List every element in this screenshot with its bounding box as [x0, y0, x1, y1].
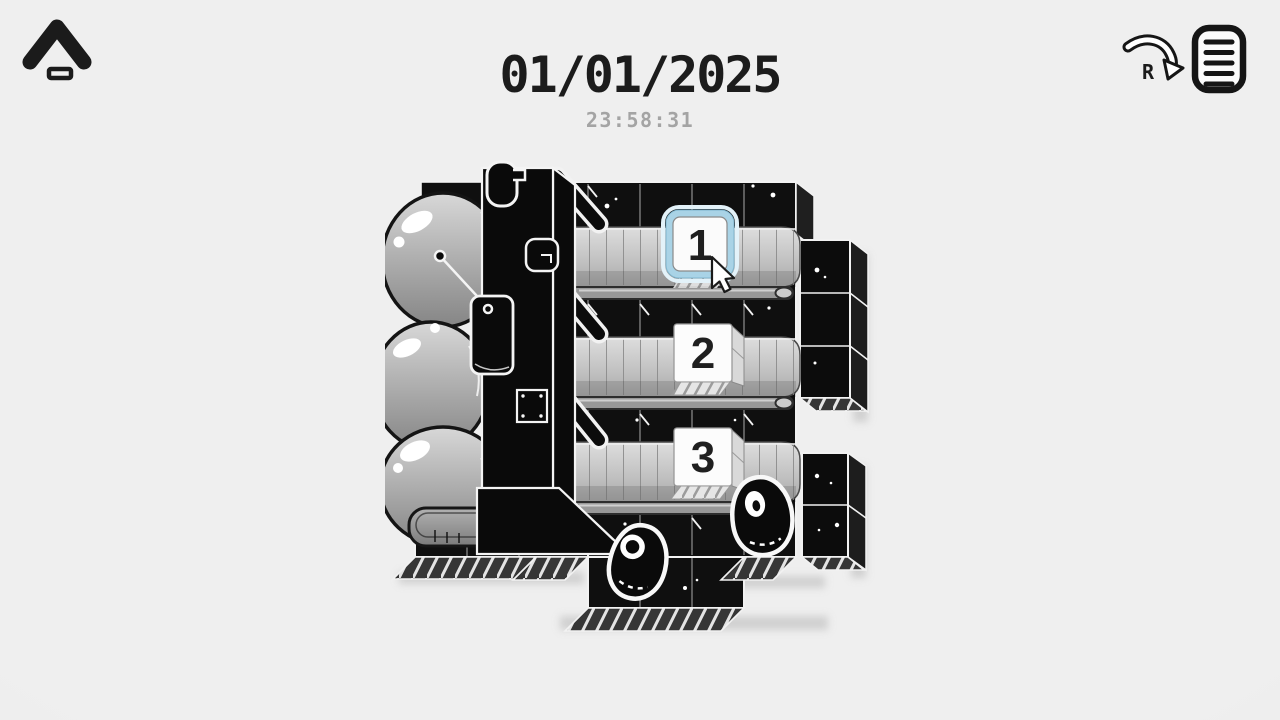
right-cube-group-upper	[800, 240, 868, 412]
machine-chimney	[487, 162, 517, 206]
arrow-head	[1164, 60, 1183, 79]
date-label: 01/01/2025	[0, 50, 1280, 100]
journal-button[interactable]	[1190, 24, 1250, 96]
shortcut-key-label: R	[1142, 60, 1155, 84]
wire-anchor	[435, 251, 445, 261]
conveyor-3-number: 3	[691, 433, 715, 482]
journal-list-icon	[1195, 28, 1243, 90]
screw-plate	[517, 390, 547, 422]
time-label: 23:58:31	[0, 110, 1280, 130]
curved-arrow-icon: R	[1118, 28, 1188, 92]
date-time-header: 01/01/2025 23:58:31	[0, 50, 1280, 130]
conveyor-2-number: 2	[691, 329, 715, 378]
conveyor-1-number: 1	[688, 221, 712, 270]
puzzle-scene: 2 3 1	[385, 158, 915, 648]
game-screen: 01/01/2025 23:58:31 R	[0, 0, 1280, 720]
roller-end-cap	[776, 398, 793, 409]
journal-group: R	[1118, 24, 1250, 98]
right-cube-group-lower	[802, 453, 866, 570]
roller-end-cap	[776, 288, 793, 299]
